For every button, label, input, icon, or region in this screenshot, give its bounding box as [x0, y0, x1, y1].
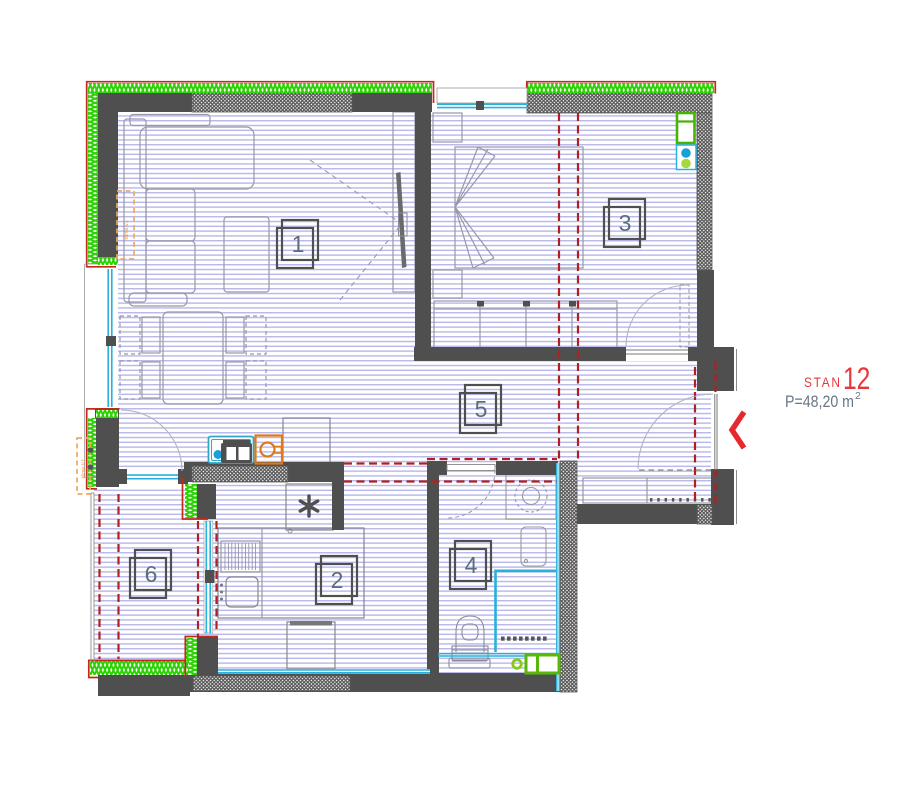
svg-text:3: 3 [619, 210, 632, 236]
svg-text:2: 2 [855, 390, 861, 402]
svg-text:1: 1 [292, 231, 305, 257]
svg-text:P=48,20 m: P=48,20 m [785, 393, 854, 411]
svg-text:klima VJ: klima VJ [81, 459, 87, 478]
svg-text:STAN: STAN [804, 374, 842, 390]
svg-text:5: 5 [475, 396, 488, 422]
svg-text:4: 4 [465, 552, 478, 578]
svg-text:2: 2 [331, 567, 344, 593]
svg-text:6: 6 [145, 561, 158, 587]
svg-text:klima VJ: klima VJ [124, 220, 130, 239]
